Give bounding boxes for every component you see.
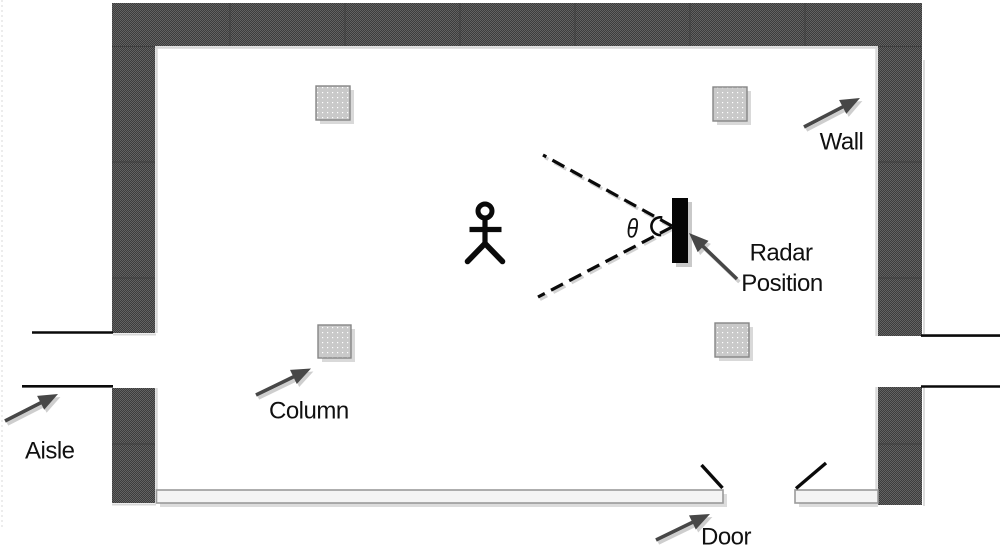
svg-text:Position: Position bbox=[741, 270, 822, 297]
svg-text:Wall: Wall bbox=[820, 129, 864, 156]
svg-text:Radar: Radar bbox=[750, 240, 813, 267]
svg-text:Door: Door bbox=[701, 524, 752, 549]
svg-text:Aisle: Aisle bbox=[25, 437, 75, 464]
svg-text:Column: Column bbox=[269, 397, 349, 424]
svg-text:θ: θ bbox=[627, 214, 639, 244]
